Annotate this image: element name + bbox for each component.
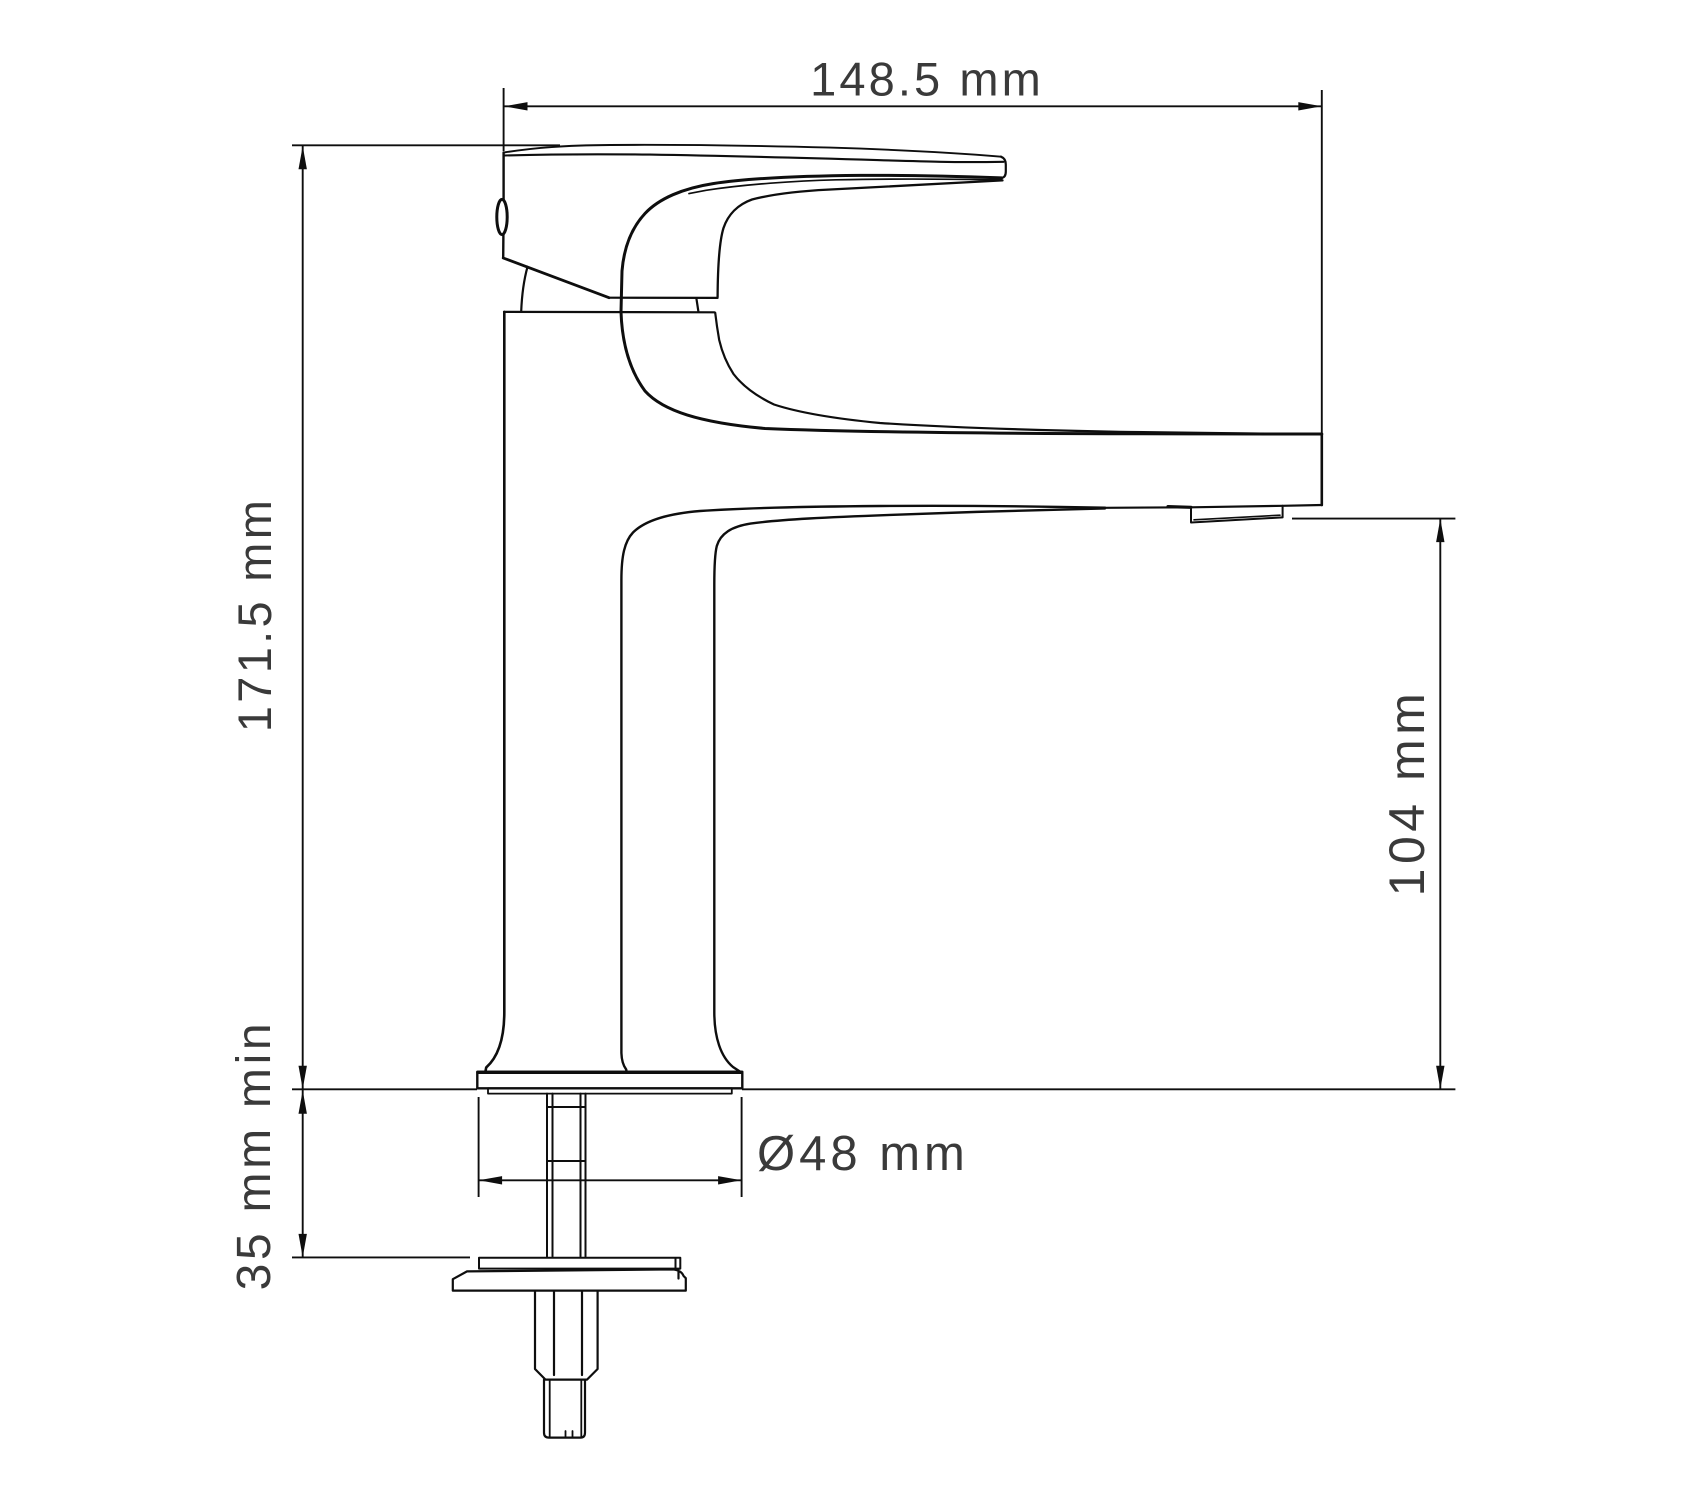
svg-text:35 mm min: 35 mm min xyxy=(228,1020,281,1291)
svg-text:171.5 mm: 171.5 mm xyxy=(228,497,281,732)
svg-text:148.5 mm: 148.5 mm xyxy=(810,53,1044,106)
svg-text:Ø48 mm: Ø48 mm xyxy=(757,1127,969,1181)
svg-text:104 mm: 104 mm xyxy=(1379,689,1435,897)
